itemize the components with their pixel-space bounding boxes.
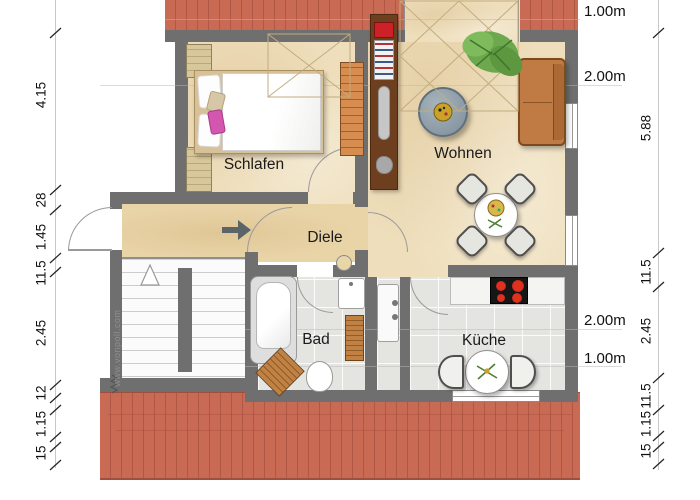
burner xyxy=(497,294,505,302)
roof-bottom xyxy=(100,392,580,480)
burner xyxy=(496,281,506,291)
roof-ridge-line xyxy=(108,414,572,415)
dim-left-1: 28 xyxy=(34,192,49,207)
kitchen-chair-left xyxy=(438,355,464,389)
sofa xyxy=(518,58,566,146)
bathtub xyxy=(250,276,297,364)
dim-right-4: 1.15 xyxy=(639,411,654,437)
floor-dormer xyxy=(400,0,518,42)
label-wohnen: Wohnen xyxy=(434,145,491,163)
dim-left-0: 4.15 xyxy=(34,82,49,108)
wall-rooms-top-c xyxy=(448,265,578,277)
coffee-table xyxy=(418,87,468,137)
dim-left-7: 15 xyxy=(34,445,49,460)
dim-left-5: 12 xyxy=(34,385,49,400)
stair-divider-wall xyxy=(178,268,192,372)
sideboard-red-box xyxy=(374,22,394,38)
burner xyxy=(512,293,522,303)
dimension-line-right xyxy=(653,0,664,470)
toilet xyxy=(306,361,333,392)
sideboard-tray xyxy=(378,86,390,140)
dim-left-6: 1.15 xyxy=(34,411,49,437)
dim-right-3: 11.5 xyxy=(639,383,654,408)
roof-ridge-line xyxy=(116,430,564,431)
sofa-backrest xyxy=(553,64,564,140)
sofa-cushion-split xyxy=(523,102,552,103)
bed-duvet xyxy=(222,73,321,151)
height-line-2m-bottom xyxy=(245,329,622,330)
dim-right-5: 15 xyxy=(639,443,654,458)
dimension-line-left xyxy=(50,0,61,470)
watermark: www.vonpoll.com xyxy=(112,309,122,386)
entrance-door-arc[interactable] xyxy=(68,207,112,251)
sideboard-towel-stack xyxy=(374,40,394,80)
window-wohnen-right-lower xyxy=(565,215,578,266)
dim-right-0: 5.88 xyxy=(639,115,654,141)
burner xyxy=(512,280,524,292)
height-label-1m-bottom: 1.00m xyxy=(584,350,626,367)
dim-left-2: 1.45 xyxy=(34,224,49,250)
wall-diele-top-a xyxy=(110,192,308,204)
washbasin xyxy=(377,284,399,342)
hall-column xyxy=(336,255,352,271)
dim-left-3: 11.5 xyxy=(34,260,49,285)
cooktop xyxy=(490,277,528,304)
window-glass-line xyxy=(453,396,539,397)
window-wohnen-right-upper xyxy=(565,103,578,149)
wall-nook-kueche xyxy=(400,277,410,392)
height-label-2m-bottom: 2.00m xyxy=(584,312,626,329)
window-glass-line xyxy=(572,104,573,148)
roof-top-left xyxy=(165,0,405,33)
height-label-2m-top: 2.00m xyxy=(584,68,626,85)
label-bad: Bad xyxy=(302,331,330,349)
schlafen-dresser xyxy=(340,62,364,156)
dim-right-1: 11.5 xyxy=(639,259,654,284)
dim-right-2: 2.45 xyxy=(639,318,654,344)
label-kueche: Küche xyxy=(462,332,506,350)
dim-left-4: 2.45 xyxy=(34,320,49,346)
sideboard-decor-ball xyxy=(376,156,393,174)
window-glass-line xyxy=(572,216,573,265)
floor-plan: Schlafen Wohnen Diele Bad Küche 4.15 28 … xyxy=(0,0,700,500)
height-line-1m-bottom xyxy=(245,366,622,367)
towel-radiator xyxy=(345,315,364,361)
label-schlafen: Schlafen xyxy=(224,156,284,174)
stair-edge-line xyxy=(122,257,247,259)
entrance-door-leaf[interactable] xyxy=(68,249,112,251)
dormer-side-right xyxy=(518,0,519,42)
label-diele: Diele xyxy=(307,229,342,247)
wall-top-left xyxy=(165,30,405,42)
height-label-1m-top: 1.00m xyxy=(584,3,626,20)
bad-sink xyxy=(338,278,365,309)
wall-bad-nook xyxy=(365,277,377,392)
bathtub-interior xyxy=(256,282,291,349)
wall-bottom-rooms-b xyxy=(540,390,578,402)
kitchen-table xyxy=(465,350,509,394)
